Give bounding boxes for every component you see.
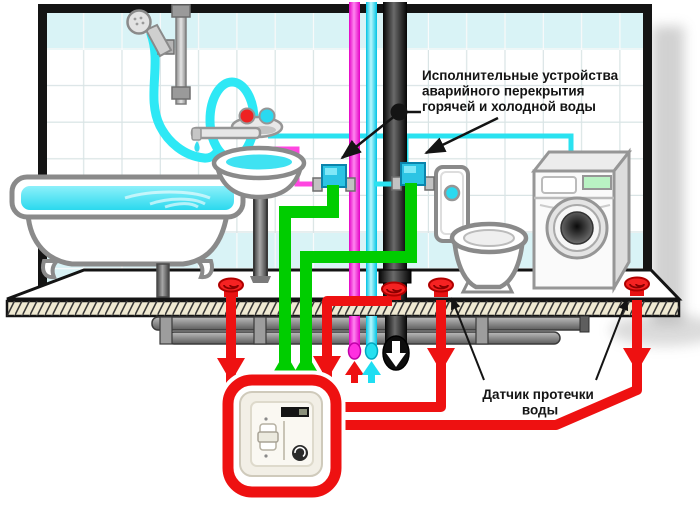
toilet-flush-button [445,186,459,200]
hot-riser-stub [349,316,360,346]
washer-detergent-drawer [542,177,576,193]
controller-slider-knob [258,432,278,442]
cold-valve-actuator-highlight [404,166,416,173]
controller-dot-top [264,417,267,420]
cold-riser-stub [366,316,377,346]
underfloor-stubs [345,316,409,383]
cold-stub-droplet [366,343,378,359]
sensor4-down-arrow [623,348,651,372]
sewer-floor-collar [379,270,411,283]
cold-knob [260,109,275,124]
shower-head [128,11,151,34]
leak-sensor-label-line2: воды [522,403,558,418]
shower-rail-top-cap [172,5,190,17]
joist-end-cap [580,316,589,332]
washer-display [583,176,611,189]
joist-hanger-3 [476,317,488,344]
actuators-label-line3: горячей и холодной воды [422,99,596,114]
hot-knob [240,109,255,124]
hot-valve-nut-left [313,178,322,191]
bathtub-drain-pipe [157,264,169,297]
controller-dot-bottom [264,454,267,457]
floor-shadow [610,314,700,346]
washing-machine [534,152,629,288]
joist-hanger-2 [254,317,266,344]
controller-unit [228,380,336,492]
joist-hanger-1 [160,317,172,344]
leak-protection-diagram: Исполнительные устройства аварийного пер… [0,0,700,516]
faucet-spout-tip [192,128,201,140]
actuators-label-line1: Исполнительные устройства [422,68,619,83]
hot-stub-droplet [349,343,361,359]
actuators-label-line2: аварийного перекрытия [422,84,585,99]
sensor3-down-arrow [427,348,455,372]
shower-rail-bottom-cap [172,87,190,99]
hot-flow-up-arrow [345,361,364,383]
leak-sensor-label-line1: Датчик протечки [482,387,593,402]
faucet-spout [192,128,260,138]
bathtub-body [28,214,227,264]
controller-display-glow [299,409,307,415]
basin-water [226,155,292,170]
washer-drum [561,212,593,244]
basin-pedestal-base [250,276,271,283]
washer-side-face [614,152,629,288]
basin-pedestal [254,190,267,278]
hot-valve-nut-right [346,178,355,191]
floor-structure [7,301,679,344]
toilet-seat-inner [464,230,514,246]
hot-valve-actuator-highlight [325,168,337,175]
cold-valve-nut-right [425,177,434,190]
cold-valve-nut-left [392,177,401,190]
cold-flow-up-arrow [362,361,381,383]
